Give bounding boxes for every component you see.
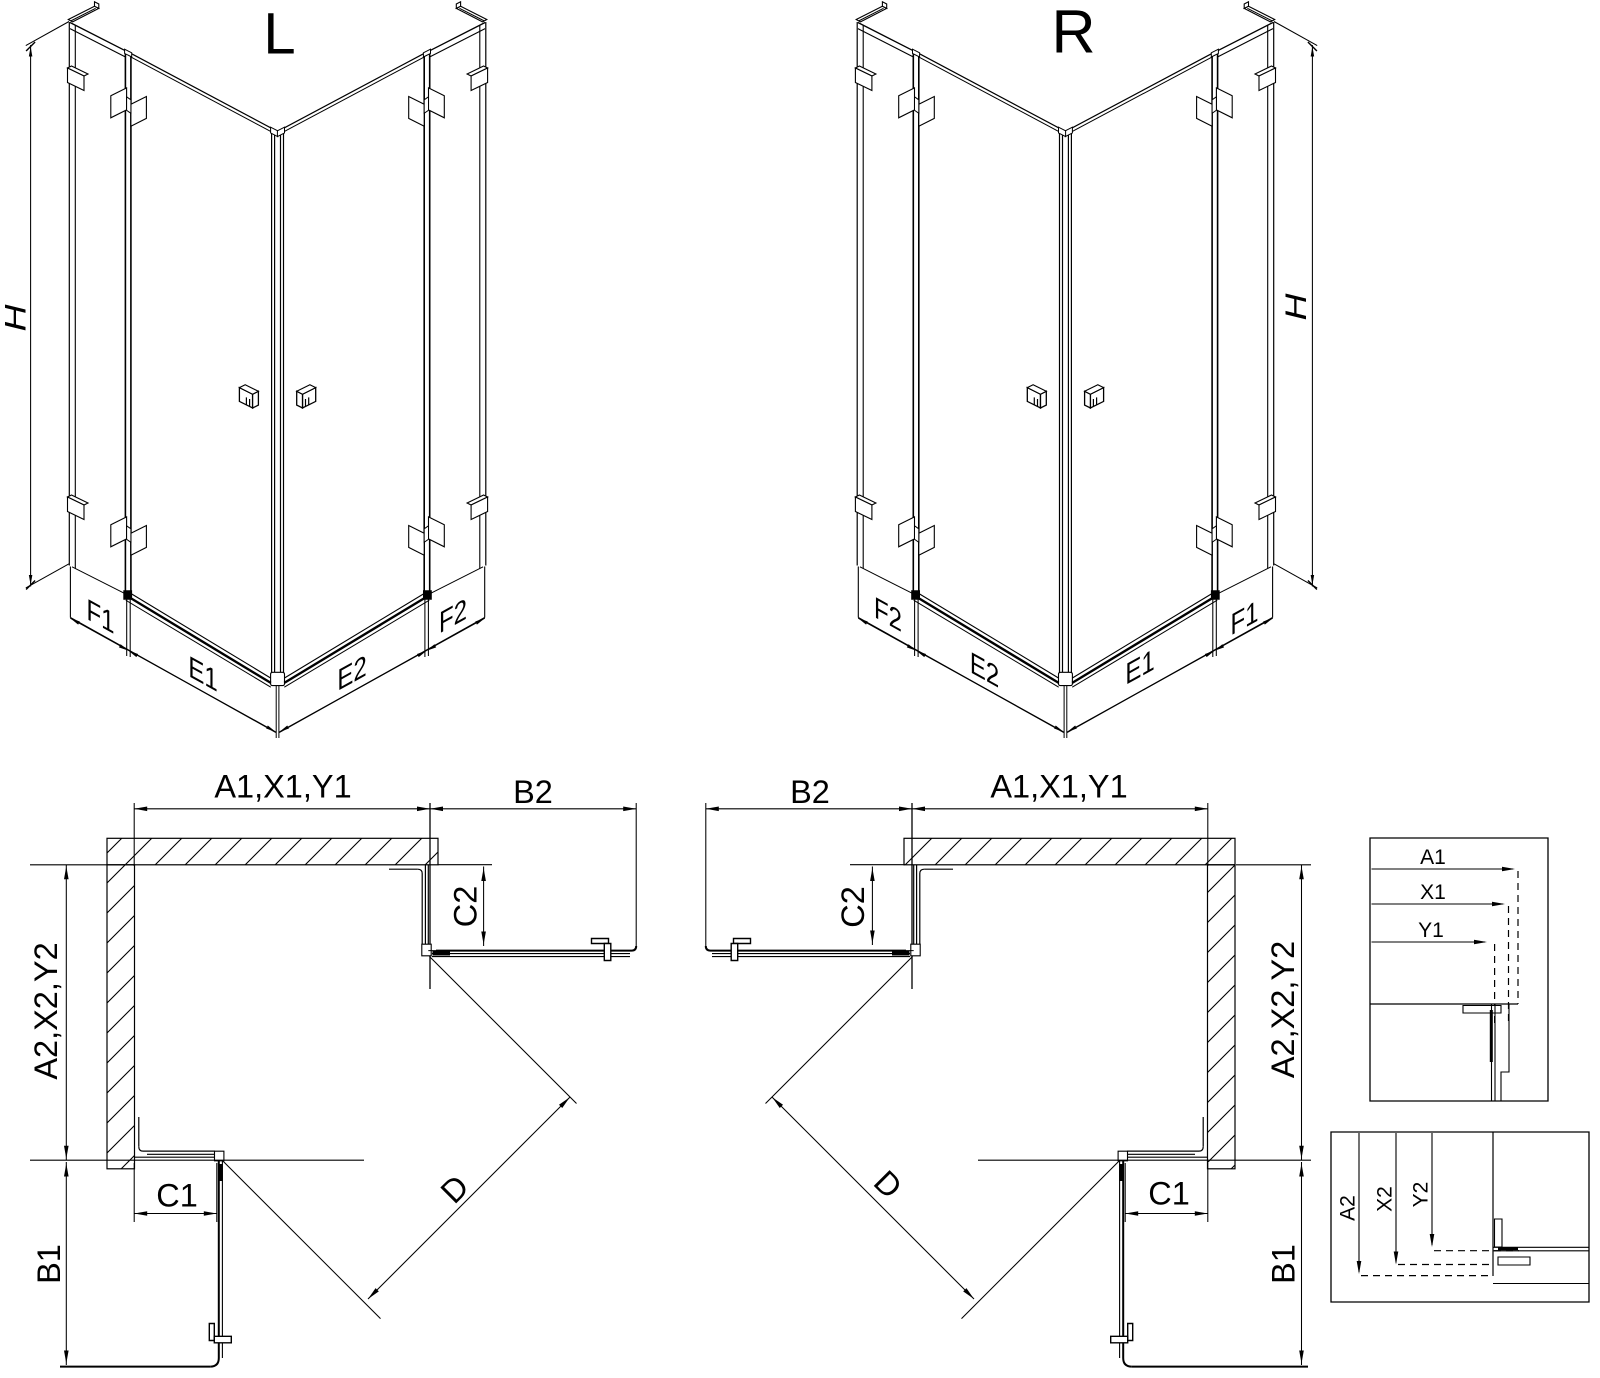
svg-text:Y1: Y1 [1418, 919, 1444, 942]
svg-text:B1: B1 [31, 1244, 67, 1284]
svg-text:H: H [0, 304, 33, 331]
svg-text:B2: B2 [790, 774, 830, 810]
svg-text:B1: B1 [1266, 1244, 1302, 1284]
svg-text:C2: C2 [448, 886, 484, 928]
svg-text:R: R [1051, 0, 1095, 66]
svg-text:A2,X2,Y2: A2,X2,Y2 [28, 942, 64, 1079]
svg-text:A1,X1,Y1: A1,X1,Y1 [990, 769, 1127, 805]
svg-text:B2: B2 [513, 774, 553, 810]
svg-text:A1: A1 [1420, 846, 1446, 869]
svg-text:C2: C2 [835, 886, 871, 928]
svg-text:A2: A2 [1337, 1195, 1360, 1221]
svg-text:X1: X1 [1420, 881, 1446, 904]
svg-text:H: H [1280, 293, 1313, 320]
svg-text:Y2: Y2 [1410, 1182, 1433, 1208]
svg-text:A2,X2,Y2: A2,X2,Y2 [1265, 941, 1301, 1078]
svg-text:L: L [263, 2, 295, 67]
svg-text:C1: C1 [156, 1178, 198, 1214]
svg-text:X2: X2 [1374, 1186, 1397, 1212]
svg-text:C1: C1 [1148, 1176, 1190, 1212]
svg-text:A1,X1,Y1: A1,X1,Y1 [214, 769, 351, 805]
